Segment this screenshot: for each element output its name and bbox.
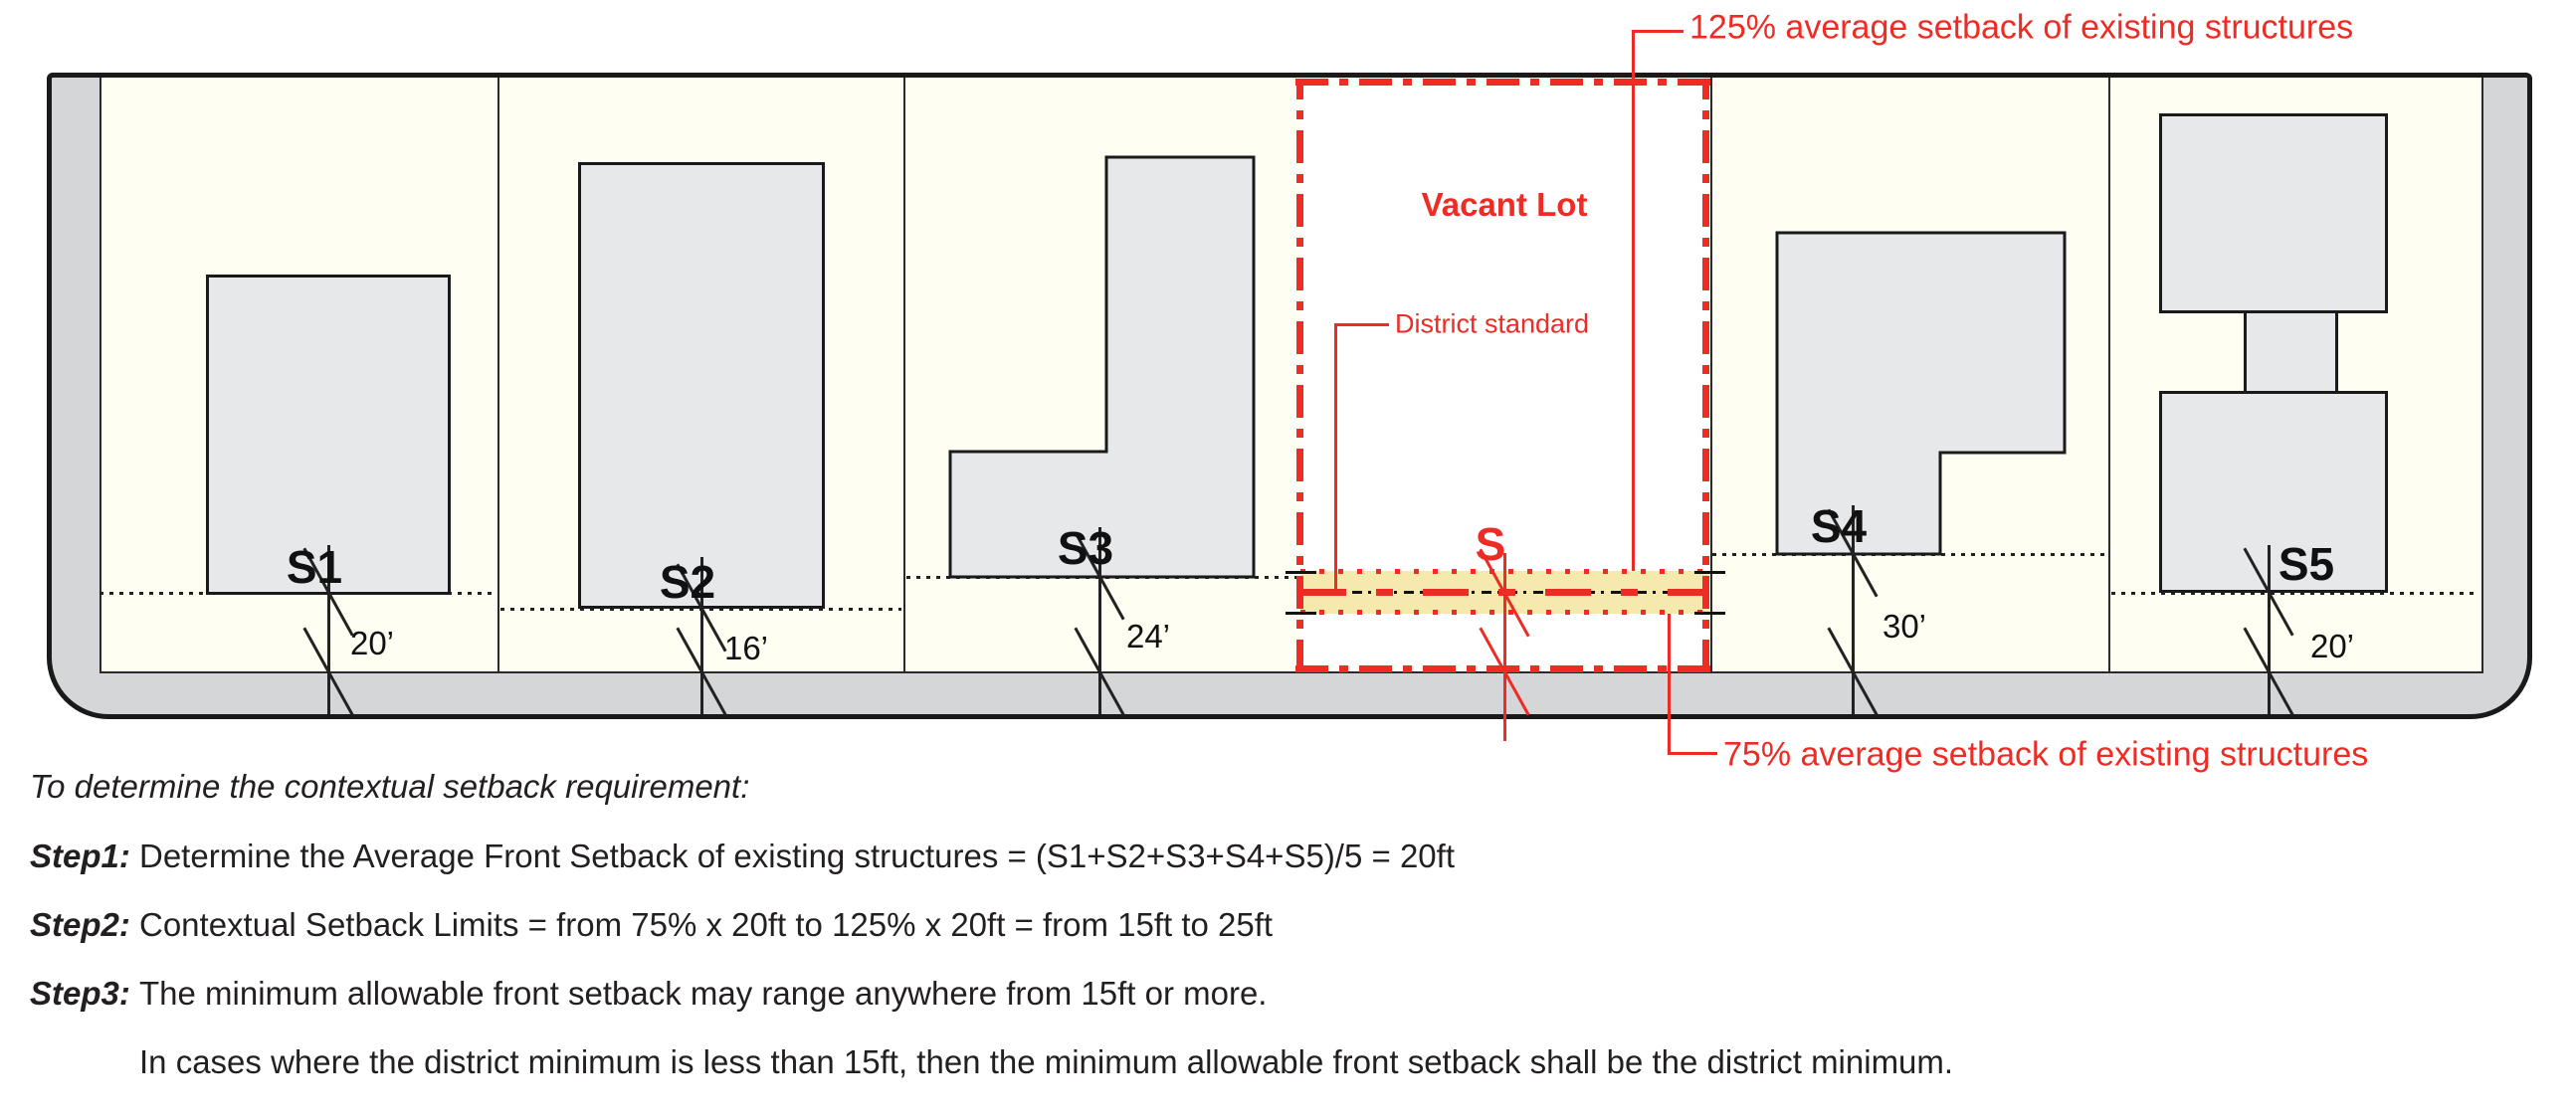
step2-text: Contextual Setback Limits = from 75% x 2… [139, 906, 1273, 944]
annotation-75-percent: 75% average setback of existing structur… [1723, 736, 2368, 775]
setback-value-s3: 24’ [1126, 618, 1170, 655]
lot-line [497, 78, 499, 671]
setback-125-leader-h [1632, 30, 1684, 33]
lot-line [2108, 78, 2110, 671]
band-tick [1694, 571, 1725, 574]
setback-75-leader-v [1668, 614, 1671, 754]
district-standard-leader-v [1334, 323, 1337, 593]
setback-label-s4: S4 [1811, 499, 1867, 553]
step3-text: The minimum allowable front setback may … [139, 975, 1267, 1013]
setback-label-s5: S5 [2279, 537, 2334, 591]
setback-label-s3: S3 [1058, 521, 1113, 575]
step3-label: Step3: [30, 975, 130, 1013]
contextual-setback-figure: { "diagram": { "vacant_lot_label": "Vaca… [0, 0, 2576, 1120]
vacant-border-right [1702, 79, 1709, 672]
district-standard-leader-h [1334, 323, 1389, 326]
dim-line-s5 [2268, 545, 2271, 714]
building-s5-top [2159, 113, 2388, 313]
step1-text: Determine the Average Front Setback of e… [139, 838, 1455, 875]
setback-value-s5: 20’ [2310, 628, 2354, 665]
vacant-lot-title: Vacant Lot [1422, 186, 1588, 224]
building-s3 [945, 152, 1264, 582]
annotation-125-percent: 125% average setback of existing structu… [1689, 9, 2353, 48]
band-tick [1694, 612, 1725, 615]
lot-line [903, 78, 905, 671]
step3-continuation-text: In cases where the district minimum is l… [139, 1043, 1953, 1081]
building-s5-middle [2244, 310, 2338, 394]
building-s2 [578, 162, 825, 609]
lot-area [99, 78, 2483, 673]
setback-75-leader-h [1668, 752, 1717, 755]
setback-label-s: S [1476, 517, 1506, 571]
district-standard-label: District standard [1395, 309, 1589, 340]
setback-label-s1: S1 [287, 540, 342, 594]
vacant-border-top [1295, 79, 1716, 86]
step1-label: Step1: [30, 838, 130, 875]
step2-label: Step2: [30, 906, 130, 944]
building-s5-bottom [2159, 391, 2388, 593]
setback-125-leader-v [1632, 30, 1635, 571]
setback-value-s2: 16’ [724, 630, 768, 667]
notes-intro: To determine the contextual setback requ… [30, 768, 749, 806]
dim-line-s [1503, 553, 1506, 741]
setback-value-s4: 30’ [1882, 608, 1926, 646]
lot-line [1710, 78, 1712, 671]
setback-label-s2: S2 [660, 555, 715, 609]
vacant-border-left [1296, 79, 1303, 672]
setback-value-s1: 20’ [350, 625, 394, 662]
